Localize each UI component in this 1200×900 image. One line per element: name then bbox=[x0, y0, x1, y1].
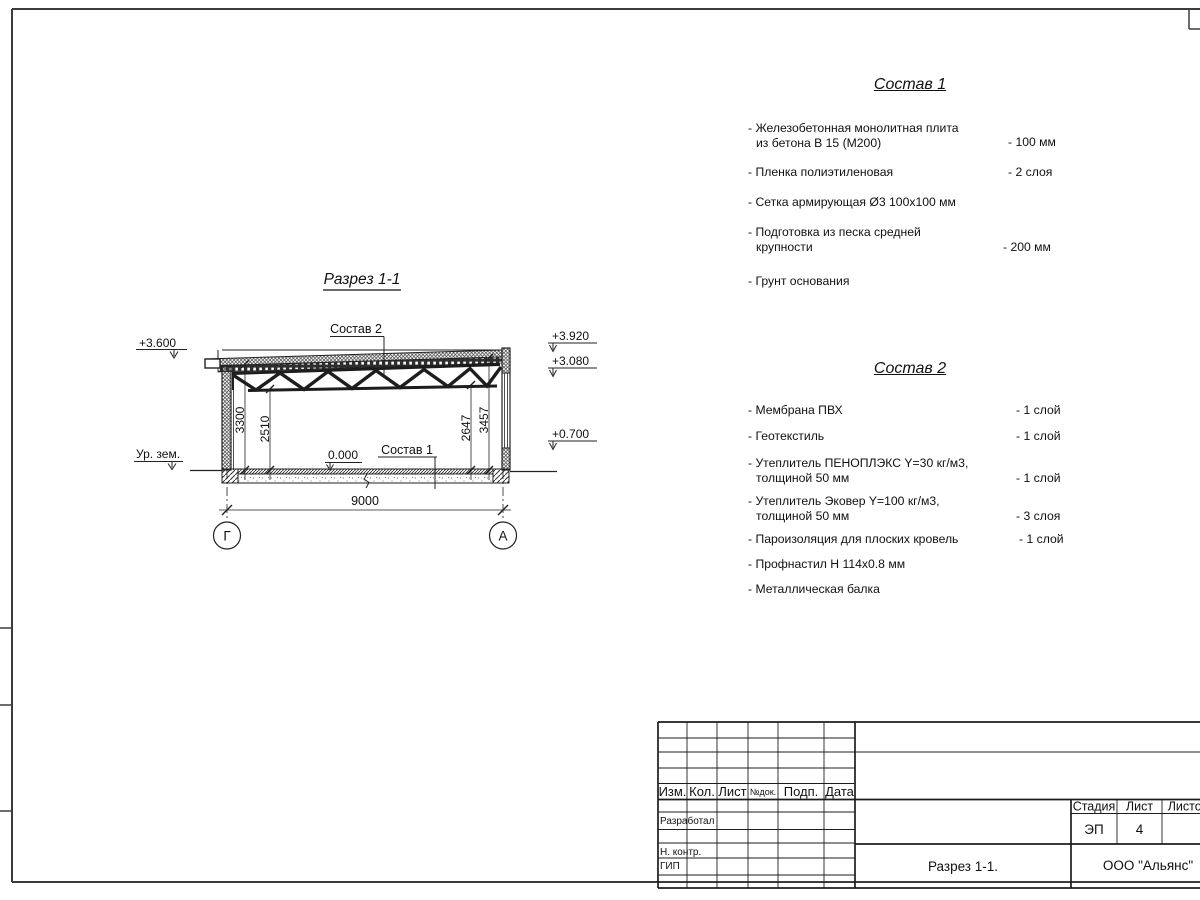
comp2-item-5: - Пароизоляция для плоских кровель bbox=[748, 532, 1008, 547]
role-developed: Разработал bbox=[660, 815, 715, 827]
axis-markers: Г А bbox=[214, 522, 517, 549]
stage-value: ЭП bbox=[1084, 822, 1103, 837]
sheet-value: 4 bbox=[1136, 822, 1144, 837]
comp1-item-2-value: - 2 слоя bbox=[1008, 165, 1052, 180]
comp2-item-5-value: - 1 слой bbox=[1019, 532, 1064, 547]
comp2-item-1-line1: - Мембрана ПВХ bbox=[748, 403, 843, 417]
role-ncontr: Н. контр. bbox=[660, 847, 701, 858]
elev-left-label: +3.600 bbox=[139, 336, 176, 350]
comp2-item-4-line2: толщиной 50 мм bbox=[748, 509, 1008, 524]
sheet-label: Лист bbox=[1126, 800, 1153, 814]
dim-2647: 2647 bbox=[459, 414, 473, 441]
dim-3457: 3457 bbox=[477, 406, 491, 433]
doc-title: Разрез 1-1. bbox=[928, 859, 998, 874]
section-title: Разрез 1-1 bbox=[324, 271, 401, 288]
drawing-sheet: { "section": { "title": "Разрез 1-1", "c… bbox=[0, 0, 1200, 900]
section-drawing: Разрез 1-1 bbox=[134, 271, 597, 549]
elevation-left: +3.600 bbox=[136, 336, 187, 358]
comp1-item-3: - Сетка армирующая Ø3 100х100 мм bbox=[748, 195, 1008, 210]
col-list: Лист bbox=[718, 784, 746, 799]
axis-label-left: Г bbox=[223, 529, 231, 544]
comp1-item-4-line2: крупности bbox=[748, 240, 1008, 255]
comp2-item-2-value: - 1 слой bbox=[1016, 429, 1061, 444]
dim-2510: 2510 bbox=[258, 415, 272, 442]
comp2-item-2: - Геотекстиль bbox=[748, 429, 1008, 444]
elev-right-ceiling-label: +3.080 bbox=[552, 354, 589, 368]
left-wall bbox=[222, 366, 234, 470]
foundation-right bbox=[493, 469, 509, 483]
comp2-item-4-value: - 3 слоя bbox=[1016, 509, 1060, 524]
sand-layer bbox=[238, 474, 493, 483]
role-gip: ГИП bbox=[660, 861, 680, 872]
zero-level-mark: 0.000 bbox=[325, 448, 362, 470]
foundation-left bbox=[222, 469, 238, 483]
comp1-item-1-line1: - Железобетонная монолитная плита bbox=[748, 121, 959, 135]
comp1-item-3-line1: - Сетка армирующая Ø3 100х100 мм bbox=[748, 195, 956, 209]
comp1-item-2: - Пленка полиэтиленовая bbox=[748, 165, 1008, 180]
sheet-canvas: Разрез 1-1 bbox=[0, 0, 1200, 900]
right-wall-sill-part bbox=[502, 448, 510, 470]
composition1-label: Состав 1 bbox=[381, 443, 433, 457]
elev-right-top-label: +3.920 bbox=[552, 329, 589, 343]
comp1-item-1: - Железобетонная монолитная плита из бет… bbox=[748, 121, 1008, 151]
comp1-item-2-line1: - Пленка полиэтиленовая bbox=[748, 165, 893, 179]
right-wall bbox=[502, 348, 510, 470]
floor-slab bbox=[238, 469, 493, 474]
comp1-item-1-value: - 100 мм bbox=[1008, 135, 1056, 150]
truss-bottom-chord bbox=[248, 386, 497, 391]
comp2-item-3-line2: толщиной 50 мм bbox=[748, 471, 1008, 486]
axis-label-right: А bbox=[498, 529, 507, 544]
binding-ticks bbox=[0, 628, 12, 811]
elev-right-sill-label: +0.700 bbox=[552, 427, 589, 441]
col-ndok: №док. bbox=[750, 787, 776, 797]
elevation-right-top: +3.920 bbox=[548, 329, 597, 352]
comp2-item-3-line1: - Утеплитель ПЕНОПЛЭКС Y=30 кг/м3, bbox=[748, 456, 968, 470]
ground-label: Ур. зем. bbox=[136, 447, 180, 461]
roof-edge-detail bbox=[205, 359, 220, 368]
comp1-item-4-value: - 200 мм bbox=[1003, 240, 1051, 255]
comp2-item-7-line1: - Металлическая балка bbox=[748, 582, 880, 596]
comp2-item-7: - Металлическая балка bbox=[748, 582, 1008, 597]
dim-3300: 3300 bbox=[233, 406, 247, 433]
comp2-item-3: - Утеплитель ПЕНОПЛЭКС Y=30 кг/м3, толщи… bbox=[748, 456, 1008, 486]
comp2-item-1: - Мембрана ПВХ bbox=[748, 403, 1008, 418]
comp2-item-4: - Утеплитель Эковер Y=100 кг/м3, толщино… bbox=[748, 494, 1008, 524]
frame-corner-box bbox=[1189, 9, 1200, 29]
ground-level-mark: Ур. зем. bbox=[134, 447, 183, 470]
comp2-item-5-line1: - Пароизоляция для плоских кровель bbox=[748, 532, 958, 546]
elevation-right-ceiling: +3.080 bbox=[548, 354, 597, 377]
title-block: Изм. Кол. Лист №док. Подп. Дата Разработ… bbox=[658, 722, 1200, 888]
col-podp: Подп. bbox=[784, 784, 819, 799]
right-parapet bbox=[502, 348, 510, 373]
elevation-right-sill: +0.700 bbox=[548, 427, 597, 450]
composition2-title: Состав 2 bbox=[830, 360, 990, 378]
comp2-item-3-value: - 1 слой bbox=[1016, 471, 1061, 486]
comp2-item-2-line1: - Геотекстиль bbox=[748, 429, 824, 443]
composition2-label: Состав 2 bbox=[330, 322, 382, 336]
comp1-item-5-line1: - Грунт основания bbox=[748, 274, 849, 288]
comp1-item-5: - Грунт основания bbox=[748, 274, 1008, 289]
comp1-item-4-line1: - Подготовка из песка средней bbox=[748, 225, 921, 239]
comp2-item-4-line1: - Утеплитель Эковер Y=100 кг/м3, bbox=[748, 494, 940, 508]
sheets-label: Листов bbox=[1168, 800, 1200, 814]
stage-label: Стадия bbox=[1073, 800, 1116, 814]
company-name: ООО "Альянс" bbox=[1103, 858, 1193, 873]
comp2-item-6: - Профнастил Н 114х0.8 мм bbox=[748, 557, 1008, 572]
comp1-item-4: - Подготовка из песка средней крупности bbox=[748, 225, 1008, 255]
comp2-item-1-value: - 1 слой bbox=[1016, 403, 1061, 418]
comp2-item-6-line1: - Профнастил Н 114х0.8 мм bbox=[748, 557, 905, 571]
zero-level-label: 0.000 bbox=[328, 448, 358, 462]
col-kol: Кол. bbox=[689, 784, 715, 799]
composition1-title: Состав 1 bbox=[830, 76, 990, 94]
col-izm: Изм. bbox=[659, 784, 687, 799]
dim-9000: 9000 bbox=[351, 494, 379, 508]
col-data: Дата bbox=[825, 784, 855, 799]
comp1-item-1-line2: из бетона В 15 (М200) bbox=[748, 136, 1008, 151]
